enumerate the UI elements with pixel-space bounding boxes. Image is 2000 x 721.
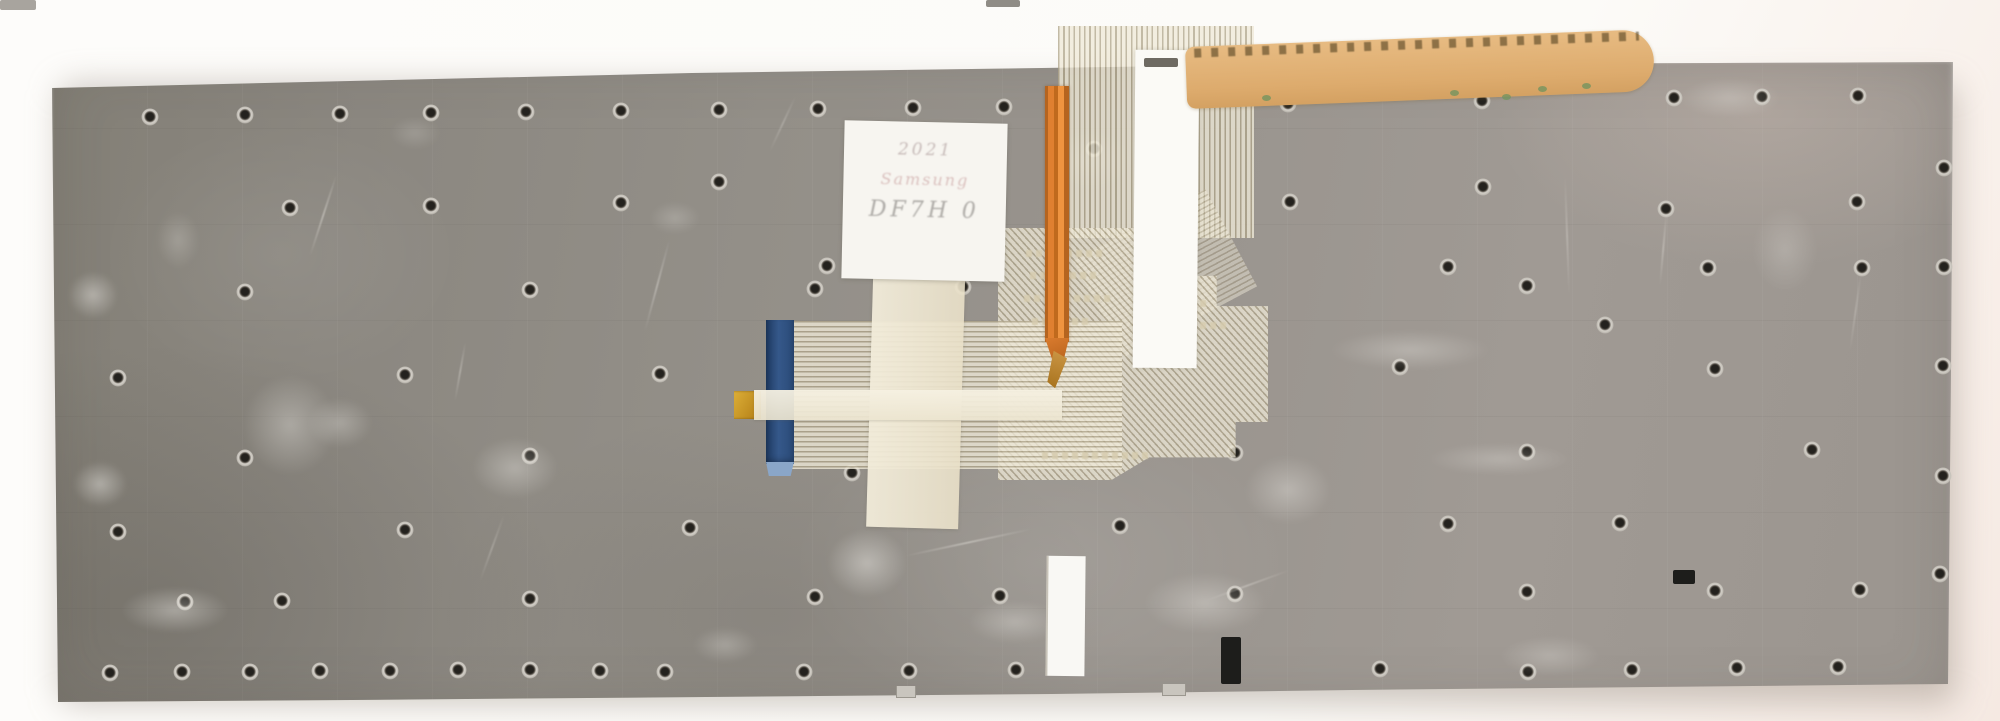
keyboard-backplate-photo: 2021 Samsung DF7H 0 [0, 0, 2000, 721]
edge-sliver-mark [0, 0, 36, 10]
edge-sliver-mark [986, 0, 1020, 7]
slivers-layer [0, 0, 2000, 721]
edge-sliver-mark [1144, 58, 1178, 67]
